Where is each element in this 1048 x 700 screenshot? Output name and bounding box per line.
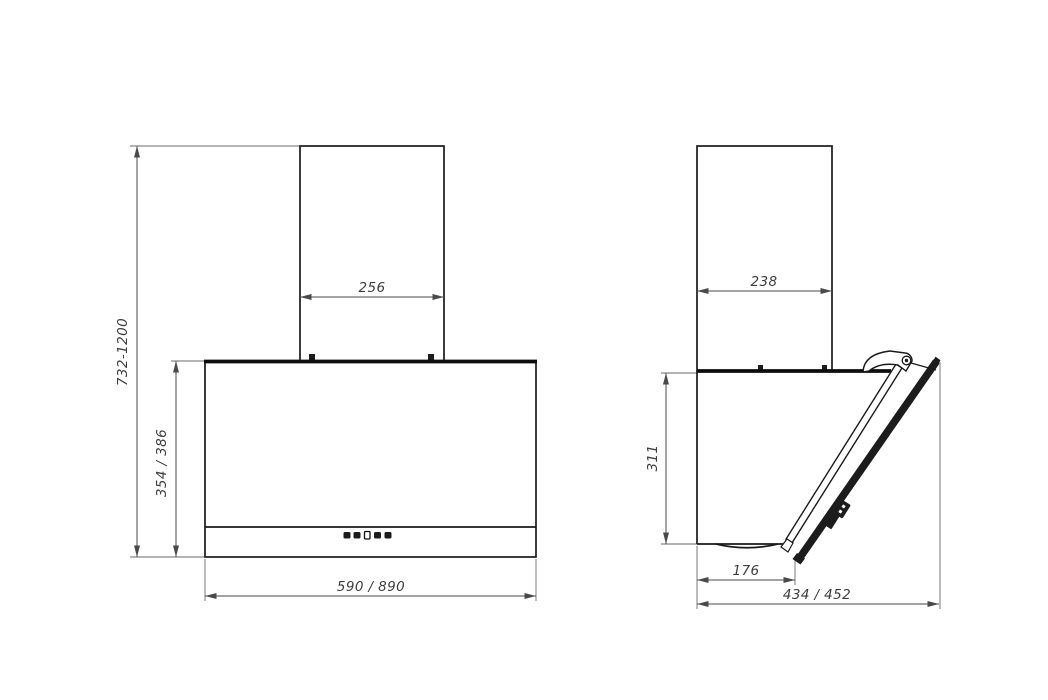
- control-button-3-outlined: [365, 532, 371, 540]
- glass-panel-assembly: [781, 351, 941, 565]
- side-chimney-duct: [697, 146, 832, 371]
- dim-label-total-depth: 434 / 452: [783, 587, 851, 603]
- control-button-2: [354, 532, 361, 539]
- front-chimney-tab-left: [309, 354, 315, 360]
- dim-label-body-width: 590 / 890: [337, 579, 405, 595]
- technical-drawing-page: 732-1200 354 / 386 256 590 / 890: [0, 0, 1048, 700]
- dim-label-chimney-width: 256: [359, 280, 386, 296]
- control-button-5: [385, 532, 392, 539]
- dim-label-height-range: 732-1200: [115, 318, 131, 386]
- hood-dimension-drawing: 732-1200 354 / 386 256 590 / 890: [0, 0, 1048, 700]
- control-button-4: [374, 532, 381, 539]
- front-chimney-duct: [300, 146, 444, 361]
- hinge-pivot-dot: [905, 359, 908, 362]
- side-view: 238 311 176 434 / 452: [645, 146, 941, 609]
- glass-panel: [799, 360, 939, 557]
- dim-label-chimney-depth: 238: [751, 274, 778, 290]
- dim-label-side-height: 311: [645, 445, 661, 472]
- front-chimney-tab-right: [428, 354, 434, 360]
- control-button-1: [344, 532, 351, 539]
- front-view: 732-1200 354 / 386 256 590 / 890: [115, 146, 537, 601]
- dim-label-body-height: 354 / 386: [154, 429, 170, 497]
- dim-label-bottom-depth: 176: [733, 563, 760, 579]
